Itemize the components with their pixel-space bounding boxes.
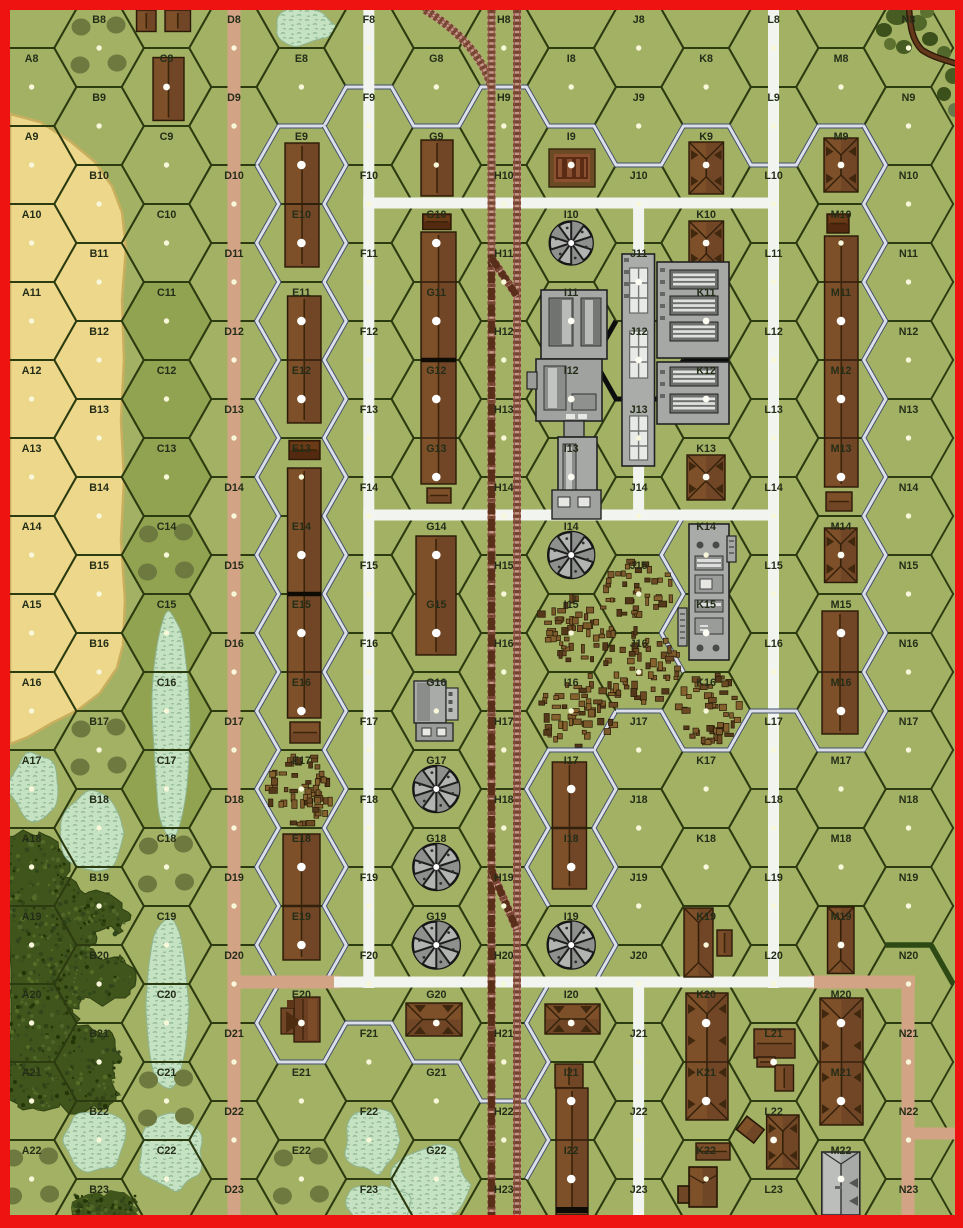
svg-text:D12: D12 (224, 326, 244, 338)
svg-text:D15: D15 (224, 560, 244, 572)
svg-text:F18: F18 (360, 794, 378, 806)
svg-text:K22: K22 (696, 1145, 716, 1157)
svg-text:A21: A21 (22, 1067, 42, 1079)
svg-text:M11: M11 (831, 287, 851, 299)
svg-text:F14: F14 (360, 482, 378, 494)
svg-text:A19: A19 (22, 911, 42, 923)
svg-text:F8: F8 (363, 14, 376, 26)
svg-text:C13: C13 (157, 443, 177, 455)
svg-text:H10: H10 (494, 170, 514, 182)
svg-text:C10: C10 (157, 209, 177, 221)
svg-text:J9: J9 (633, 92, 645, 104)
svg-text:C18: C18 (157, 833, 177, 845)
svg-text:L23: L23 (764, 1184, 782, 1196)
svg-text:N14: N14 (899, 482, 919, 494)
svg-text:F16: F16 (360, 638, 378, 650)
svg-text:L14: L14 (764, 482, 782, 494)
svg-text:H23: H23 (494, 1184, 514, 1196)
svg-text:N12: N12 (899, 326, 919, 338)
svg-text:N22: N22 (899, 1106, 919, 1118)
svg-text:B14: B14 (89, 482, 109, 494)
svg-text:M13: M13 (831, 443, 852, 455)
svg-text:E13: E13 (292, 443, 311, 455)
svg-text:J12: J12 (630, 326, 648, 338)
svg-text:N17: N17 (899, 716, 919, 728)
svg-text:I18: I18 (564, 833, 579, 845)
svg-text:N16: N16 (899, 638, 919, 650)
svg-text:E14: E14 (292, 521, 311, 533)
svg-text:C12: C12 (157, 365, 177, 377)
svg-text:C15: C15 (157, 599, 177, 611)
svg-text:H20: H20 (494, 950, 514, 962)
svg-text:B12: B12 (89, 326, 109, 338)
svg-text:L16: L16 (764, 638, 782, 650)
svg-text:C11: C11 (157, 287, 176, 299)
svg-text:J22: J22 (630, 1106, 648, 1118)
svg-text:G8: G8 (429, 53, 443, 65)
svg-text:L17: L17 (764, 716, 782, 728)
svg-text:A12: A12 (22, 365, 42, 377)
svg-text:B15: B15 (89, 560, 109, 572)
svg-text:J20: J20 (630, 950, 648, 962)
svg-text:E12: E12 (292, 365, 311, 377)
svg-text:B10: B10 (89, 170, 109, 182)
svg-text:M22: M22 (831, 1145, 852, 1157)
svg-text:D23: D23 (224, 1184, 244, 1196)
svg-text:G18: G18 (426, 833, 446, 845)
svg-text:G9: G9 (429, 131, 443, 143)
svg-text:J17: J17 (630, 716, 648, 728)
svg-text:I17: I17 (564, 755, 579, 767)
svg-text:H17: H17 (494, 716, 514, 728)
svg-text:I16: I16 (564, 677, 579, 689)
svg-text:B16: B16 (89, 638, 109, 650)
svg-text:B21: B21 (89, 1028, 109, 1040)
svg-text:K21: K21 (696, 1067, 716, 1079)
svg-text:C21: C21 (157, 1067, 177, 1079)
svg-text:I10: I10 (564, 209, 579, 221)
svg-text:E11: E11 (292, 287, 310, 299)
svg-text:D21: D21 (224, 1028, 244, 1040)
svg-text:E8: E8 (295, 53, 308, 65)
svg-text:N13: N13 (899, 404, 919, 416)
svg-text:K16: K16 (696, 677, 716, 689)
svg-text:E21: E21 (292, 1067, 311, 1079)
svg-text:G10: G10 (426, 209, 446, 221)
svg-text:M9: M9 (834, 131, 849, 143)
svg-text:E15: E15 (292, 599, 311, 611)
svg-text:C8: C8 (160, 53, 174, 65)
svg-text:N23: N23 (899, 1184, 919, 1196)
svg-text:J18: J18 (630, 794, 648, 806)
svg-text:M14: M14 (831, 521, 852, 533)
svg-text:F11: F11 (360, 248, 378, 260)
svg-text:N10: N10 (899, 170, 919, 182)
svg-text:L20: L20 (764, 950, 782, 962)
svg-text:H12: H12 (494, 326, 514, 338)
svg-text:D20: D20 (224, 950, 244, 962)
svg-text:I13: I13 (564, 443, 579, 455)
svg-text:M20: M20 (831, 989, 852, 1001)
svg-text:K13: K13 (696, 443, 716, 455)
svg-text:F10: F10 (360, 170, 378, 182)
svg-text:B20: B20 (89, 950, 109, 962)
svg-text:F23: F23 (360, 1184, 378, 1196)
svg-text:L8: L8 (767, 14, 780, 26)
svg-text:K8: K8 (699, 53, 713, 65)
svg-text:I22: I22 (564, 1145, 579, 1157)
svg-text:I19: I19 (564, 911, 579, 923)
svg-text:E9: E9 (295, 131, 308, 143)
svg-text:G14: G14 (426, 521, 446, 533)
svg-text:D19: D19 (224, 872, 244, 884)
svg-text:L18: L18 (764, 794, 782, 806)
svg-text:D14: D14 (224, 482, 244, 494)
svg-text:E20: E20 (292, 989, 311, 1001)
svg-text:F21: F21 (360, 1028, 378, 1040)
svg-text:A10: A10 (22, 209, 42, 221)
svg-text:E19: E19 (292, 911, 311, 923)
svg-text:I20: I20 (564, 989, 579, 1001)
svg-text:L15: L15 (764, 560, 782, 572)
svg-text:M12: M12 (831, 365, 852, 377)
svg-text:I8: I8 (567, 53, 576, 65)
svg-text:H14: H14 (494, 482, 514, 494)
svg-text:K18: K18 (696, 833, 716, 845)
svg-text:M10: M10 (831, 209, 852, 221)
svg-text:K10: K10 (696, 209, 716, 221)
svg-text:A16: A16 (22, 677, 42, 689)
svg-text:C20: C20 (157, 989, 177, 1001)
svg-text:H9: H9 (497, 92, 511, 104)
svg-text:N19: N19 (899, 872, 919, 884)
svg-text:G20: G20 (426, 989, 446, 1001)
svg-text:F12: F12 (360, 326, 378, 338)
svg-text:J13: J13 (630, 404, 648, 416)
svg-text:I14: I14 (564, 521, 579, 533)
svg-text:K20: K20 (696, 989, 716, 1001)
svg-text:N21: N21 (899, 1028, 919, 1040)
svg-text:J16: J16 (630, 638, 648, 650)
svg-text:J21: J21 (630, 1028, 648, 1040)
svg-text:B13: B13 (89, 404, 109, 416)
svg-text:G16: G16 (426, 677, 446, 689)
svg-text:K14: K14 (696, 521, 716, 533)
svg-text:K17: K17 (696, 755, 716, 767)
svg-text:D13: D13 (224, 404, 244, 416)
svg-text:A22: A22 (22, 1145, 42, 1157)
svg-text:J23: J23 (630, 1184, 648, 1196)
svg-text:J15: J15 (630, 560, 648, 572)
svg-text:F19: F19 (360, 872, 378, 884)
svg-text:C9: C9 (160, 131, 174, 143)
svg-text:A20: A20 (22, 989, 42, 1001)
svg-text:I15: I15 (564, 599, 579, 611)
svg-text:F22: F22 (360, 1106, 378, 1118)
svg-text:E18: E18 (292, 833, 311, 845)
svg-text:M17: M17 (831, 755, 852, 767)
svg-text:B23: B23 (89, 1184, 109, 1196)
svg-text:A13: A13 (22, 443, 42, 455)
svg-text:M19: M19 (831, 911, 852, 923)
svg-text:C14: C14 (157, 521, 177, 533)
svg-text:F13: F13 (360, 404, 378, 416)
svg-text:M8: M8 (834, 53, 849, 65)
svg-text:L10: L10 (764, 170, 782, 182)
svg-text:B22: B22 (89, 1106, 109, 1118)
svg-text:H16: H16 (494, 638, 514, 650)
svg-text:C16: C16 (157, 677, 177, 689)
svg-text:G22: G22 (426, 1145, 446, 1157)
svg-text:E17: E17 (292, 755, 311, 767)
svg-text:M18: M18 (831, 833, 852, 845)
svg-text:G11: G11 (426, 287, 446, 299)
svg-text:D17: D17 (224, 716, 244, 728)
svg-text:F17: F17 (360, 716, 378, 728)
svg-text:A11: A11 (22, 287, 41, 299)
svg-text:A18: A18 (22, 833, 42, 845)
svg-text:L19: L19 (764, 872, 782, 884)
svg-text:G12: G12 (426, 365, 446, 377)
svg-text:E10: E10 (292, 209, 311, 221)
svg-text:K12: K12 (696, 365, 716, 377)
svg-text:B8: B8 (92, 14, 106, 26)
svg-text:A9: A9 (25, 131, 39, 143)
svg-text:M16: M16 (831, 677, 852, 689)
svg-text:N20: N20 (899, 950, 919, 962)
svg-text:I21: I21 (564, 1067, 579, 1079)
svg-text:N15: N15 (899, 560, 919, 572)
svg-text:F20: F20 (360, 950, 378, 962)
svg-text:B9: B9 (92, 92, 106, 104)
svg-text:D10: D10 (224, 170, 244, 182)
svg-text:C17: C17 (157, 755, 177, 767)
svg-text:B11: B11 (90, 248, 109, 260)
svg-text:L12: L12 (764, 326, 782, 338)
svg-text:J10: J10 (630, 170, 648, 182)
svg-text:N18: N18 (899, 794, 919, 806)
svg-text:E22: E22 (292, 1145, 311, 1157)
svg-text:C22: C22 (157, 1145, 177, 1157)
svg-text:A17: A17 (22, 755, 42, 767)
svg-text:F15: F15 (360, 560, 378, 572)
svg-text:D16: D16 (224, 638, 244, 650)
svg-text:I9: I9 (567, 131, 576, 143)
svg-text:J14: J14 (630, 482, 648, 494)
svg-text:G21: G21 (426, 1067, 446, 1079)
svg-text:M15: M15 (831, 599, 852, 611)
svg-text:H22: H22 (494, 1106, 514, 1118)
svg-text:D9: D9 (227, 92, 241, 104)
svg-text:L11: L11 (765, 248, 783, 260)
svg-text:L9: L9 (767, 92, 780, 104)
svg-text:K15: K15 (696, 599, 716, 611)
svg-text:A8: A8 (25, 53, 39, 65)
svg-text:G17: G17 (426, 755, 446, 767)
svg-text:L21: L21 (764, 1028, 782, 1040)
svg-text:H21: H21 (494, 1028, 514, 1040)
svg-text:B18: B18 (89, 794, 109, 806)
svg-text:H15: H15 (494, 560, 514, 572)
svg-text:D8: D8 (227, 14, 241, 26)
svg-text:I11: I11 (564, 287, 578, 299)
svg-text:K9: K9 (699, 131, 713, 143)
svg-text:D18: D18 (224, 794, 244, 806)
svg-text:A15: A15 (22, 599, 42, 611)
svg-text:N8: N8 (902, 14, 916, 26)
svg-text:C19: C19 (157, 911, 177, 923)
svg-text:K19: K19 (696, 911, 716, 923)
svg-text:L22: L22 (764, 1106, 782, 1118)
svg-text:K11: K11 (697, 287, 716, 299)
svg-text:L13: L13 (764, 404, 782, 416)
svg-text:H11: H11 (494, 248, 513, 260)
svg-text:E16: E16 (292, 677, 311, 689)
svg-text:I12: I12 (564, 365, 579, 377)
svg-text:J11: J11 (630, 248, 647, 260)
svg-text:H13: H13 (494, 404, 514, 416)
svg-text:G15: G15 (426, 599, 446, 611)
svg-text:G13: G13 (426, 443, 446, 455)
svg-text:B19: B19 (89, 872, 109, 884)
svg-text:D22: D22 (224, 1106, 244, 1118)
svg-text:H18: H18 (494, 794, 514, 806)
svg-text:G19: G19 (426, 911, 446, 923)
svg-text:J8: J8 (633, 14, 645, 26)
svg-text:H19: H19 (494, 872, 514, 884)
svg-text:N11: N11 (899, 248, 918, 260)
svg-text:H8: H8 (497, 14, 511, 26)
svg-text:A14: A14 (22, 521, 42, 533)
svg-text:B17: B17 (89, 716, 109, 728)
svg-text:M21: M21 (831, 1067, 852, 1079)
svg-text:D11: D11 (224, 248, 243, 260)
svg-text:N9: N9 (902, 92, 916, 104)
svg-text:J19: J19 (630, 872, 648, 884)
svg-text:F9: F9 (363, 92, 376, 104)
